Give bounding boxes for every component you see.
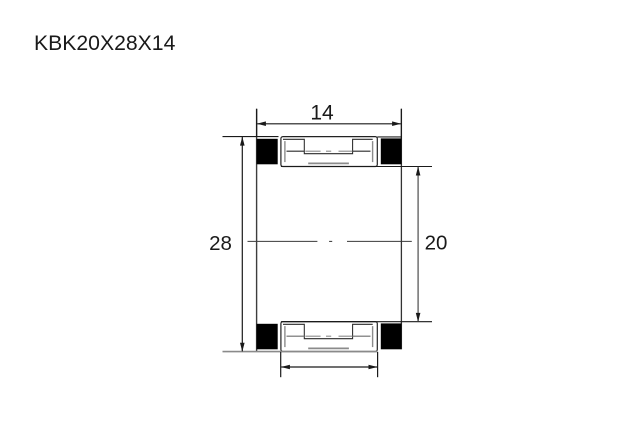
svg-text:KBK20X28X14: KBK20X28X14 (34, 32, 176, 55)
svg-text:28: 28 (209, 232, 232, 255)
svg-text:14: 14 (310, 101, 334, 124)
svg-text:20: 20 (425, 232, 448, 255)
